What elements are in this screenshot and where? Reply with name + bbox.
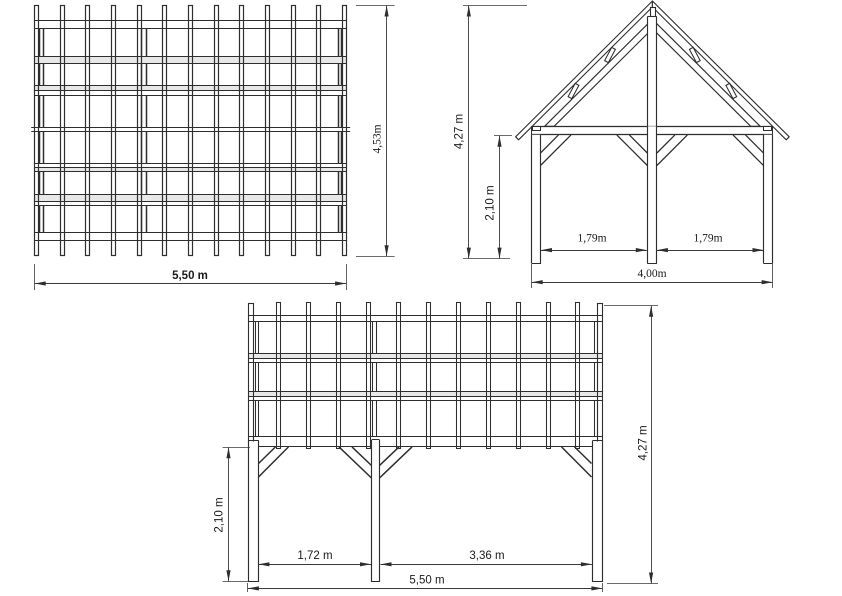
svg-text:5,50 m: 5,50 m [172, 270, 208, 282]
svg-text:4,53m: 4,53m [372, 124, 384, 153]
svg-text:3,36 m: 3,36 m [469, 550, 504, 562]
svg-text:4,00m: 4,00m [637, 268, 666, 280]
svg-text:2,10 m: 2,10 m [214, 497, 226, 532]
svg-text:4,27 m: 4,27 m [454, 114, 466, 149]
svg-text:4,27 m: 4,27 m [638, 425, 650, 460]
svg-text:1,72 m: 1,72 m [297, 550, 332, 562]
svg-text:1,79m: 1,79m [577, 233, 606, 245]
svg-text:1,79m: 1,79m [693, 233, 722, 245]
svg-text:2,10 m: 2,10 m [485, 185, 497, 220]
svg-text:5,50 m: 5,50 m [409, 575, 444, 587]
